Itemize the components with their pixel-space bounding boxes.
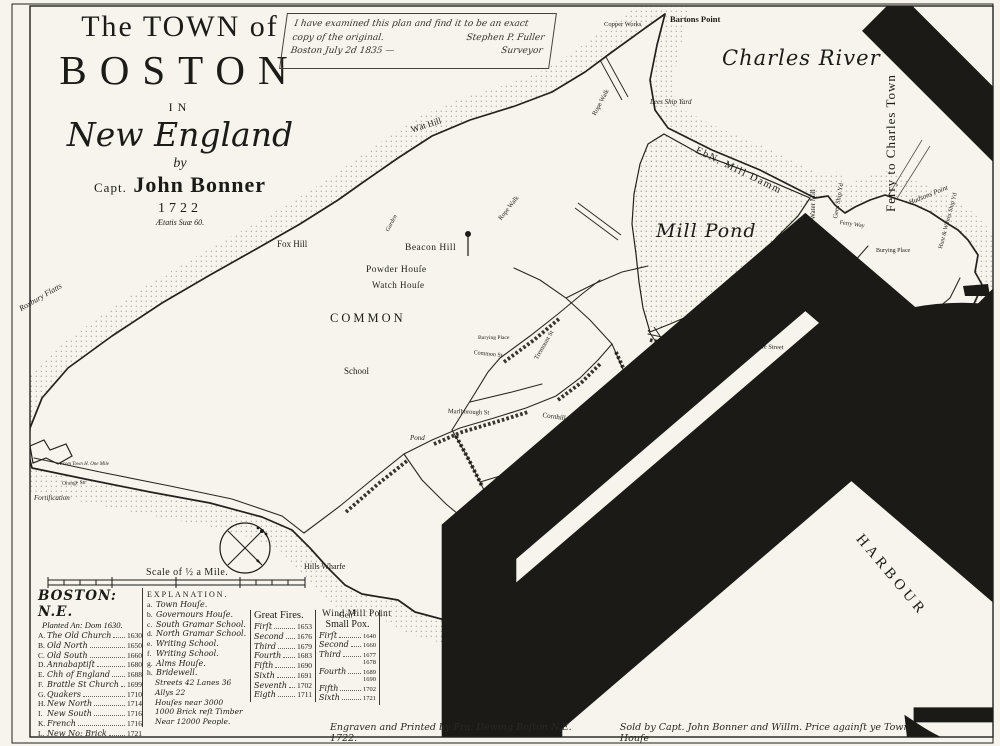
north-battery: [963, 284, 990, 296]
church-row: F.Brattle St Church 1699: [38, 680, 142, 690]
explanation-row: d.North Gramar School.: [147, 629, 248, 639]
church-row: G.Quakers 1710: [38, 690, 142, 700]
town-stat: Streets 42 Lanes 36 Allys 22: [155, 678, 248, 698]
fire-row: Fourth1683: [254, 651, 312, 661]
explanation-row: e.Writing School.: [147, 639, 248, 649]
smallpox-row: Second 1660: [319, 640, 376, 650]
church-row: C.Old South 1660: [38, 651, 142, 661]
smallpox-row: Sixth 1721: [319, 693, 376, 703]
bonner-map-of-boston-1722: Bartons PointCopper WorksCharles RiverFe…: [0, 0, 1000, 746]
explanation-row: b.Governours Houſe.: [147, 610, 248, 620]
note-surveyor: Surveyor: [500, 45, 543, 59]
fire-row: Eigth1711: [254, 690, 312, 700]
title-in: IN: [30, 100, 330, 115]
churches-title: BOSTON: N.E.: [38, 588, 142, 620]
town-stat: 1000 Brick reſt Timber: [155, 707, 248, 717]
town-stat: Near 12000 People.: [155, 717, 248, 727]
smallpox-row: Firſt 1640: [319, 631, 376, 641]
title-year: 1722: [30, 201, 330, 217]
smallpox-table: Genll Small Pox. Firſt 1640 Second 1660: [316, 610, 380, 705]
imprint-engraver: Engraven and Printed by Fra: Dewing Boſt…: [330, 722, 592, 744]
church-row: H.New North 1714: [38, 699, 142, 709]
fire-row: Seventh1702: [254, 681, 312, 691]
certification-note: I have examined this plan and find it to…: [279, 13, 557, 69]
churches-subtitle: Planted An: Dom 1630.: [42, 620, 142, 630]
imprint-seller: Sold by Capt. John Bonner and Willm. Pri…: [620, 722, 930, 744]
churches-table: BOSTON: N.E. Planted An: Dom 1630. A.The…: [38, 588, 142, 738]
note-line1: I have examined this plan and find it to…: [293, 18, 547, 32]
note-line3-left: Boston July 2d 1835 —: [290, 45, 396, 59]
fire-row: Fifth1690: [254, 661, 312, 671]
title-aetatis: Ætatis Suæ 60.: [30, 218, 330, 227]
explanation-title: EXPLANATION.: [147, 590, 248, 599]
fire-row: Sixth1691: [254, 671, 312, 681]
explanation-row: h.Bridewell.: [147, 668, 248, 678]
smallpox-row: Fourth 16891690: [319, 667, 376, 684]
church-row: E.Chh of England 1688: [38, 670, 142, 680]
title-by: by: [30, 156, 330, 172]
church-row: B.Old North 1650: [38, 641, 142, 651]
church-row: L.New No: Brick 1721: [38, 729, 142, 739]
legend: BOSTON: N.E. Planted An: Dom 1630. A.The…: [38, 588, 380, 738]
smallpox-row: Third 16771678: [319, 650, 376, 667]
note-line2-left: copy of the original.: [291, 32, 384, 46]
great-fires-title: Great Fires.: [254, 610, 312, 621]
explanation-table: EXPLANATION. a.Town Houſe. b.Governours …: [142, 588, 248, 727]
explanation-row: f.Writing School.: [147, 649, 248, 659]
explanation-row: g.Alms Houſe.: [147, 659, 248, 669]
smallpox-title: Small Pox.: [319, 620, 376, 630]
church-row: K.French 1716: [38, 719, 142, 729]
note-signature: Stephen P. Fuller: [465, 32, 545, 46]
fire-row: Third1679: [254, 642, 312, 652]
scale-bar: [48, 577, 305, 588]
town-stat: Houſes near 3000: [155, 698, 248, 708]
fire-row: Second1676: [254, 632, 312, 642]
explanation-row: c.South Gramar School.: [147, 620, 248, 630]
imprint: Engraven and Printed by Fra: Dewing Boſt…: [330, 722, 930, 744]
great-fires-table: Great Fires. Firſt1653 Second1676 Third1…: [250, 610, 316, 702]
smallpox-row: Fifth 1702: [319, 684, 376, 694]
church-row: A.The Old Church 1630: [38, 631, 142, 641]
title-author: Capt. John Bonner: [30, 172, 330, 198]
fire-row: Firſt1653: [254, 622, 312, 632]
title-new-england: New England: [30, 115, 330, 154]
church-row: D.Annabaptiſt 1680: [38, 660, 142, 670]
church-row: I.New South 1716: [38, 709, 142, 719]
explanation-row: a.Town Houſe.: [147, 600, 248, 610]
